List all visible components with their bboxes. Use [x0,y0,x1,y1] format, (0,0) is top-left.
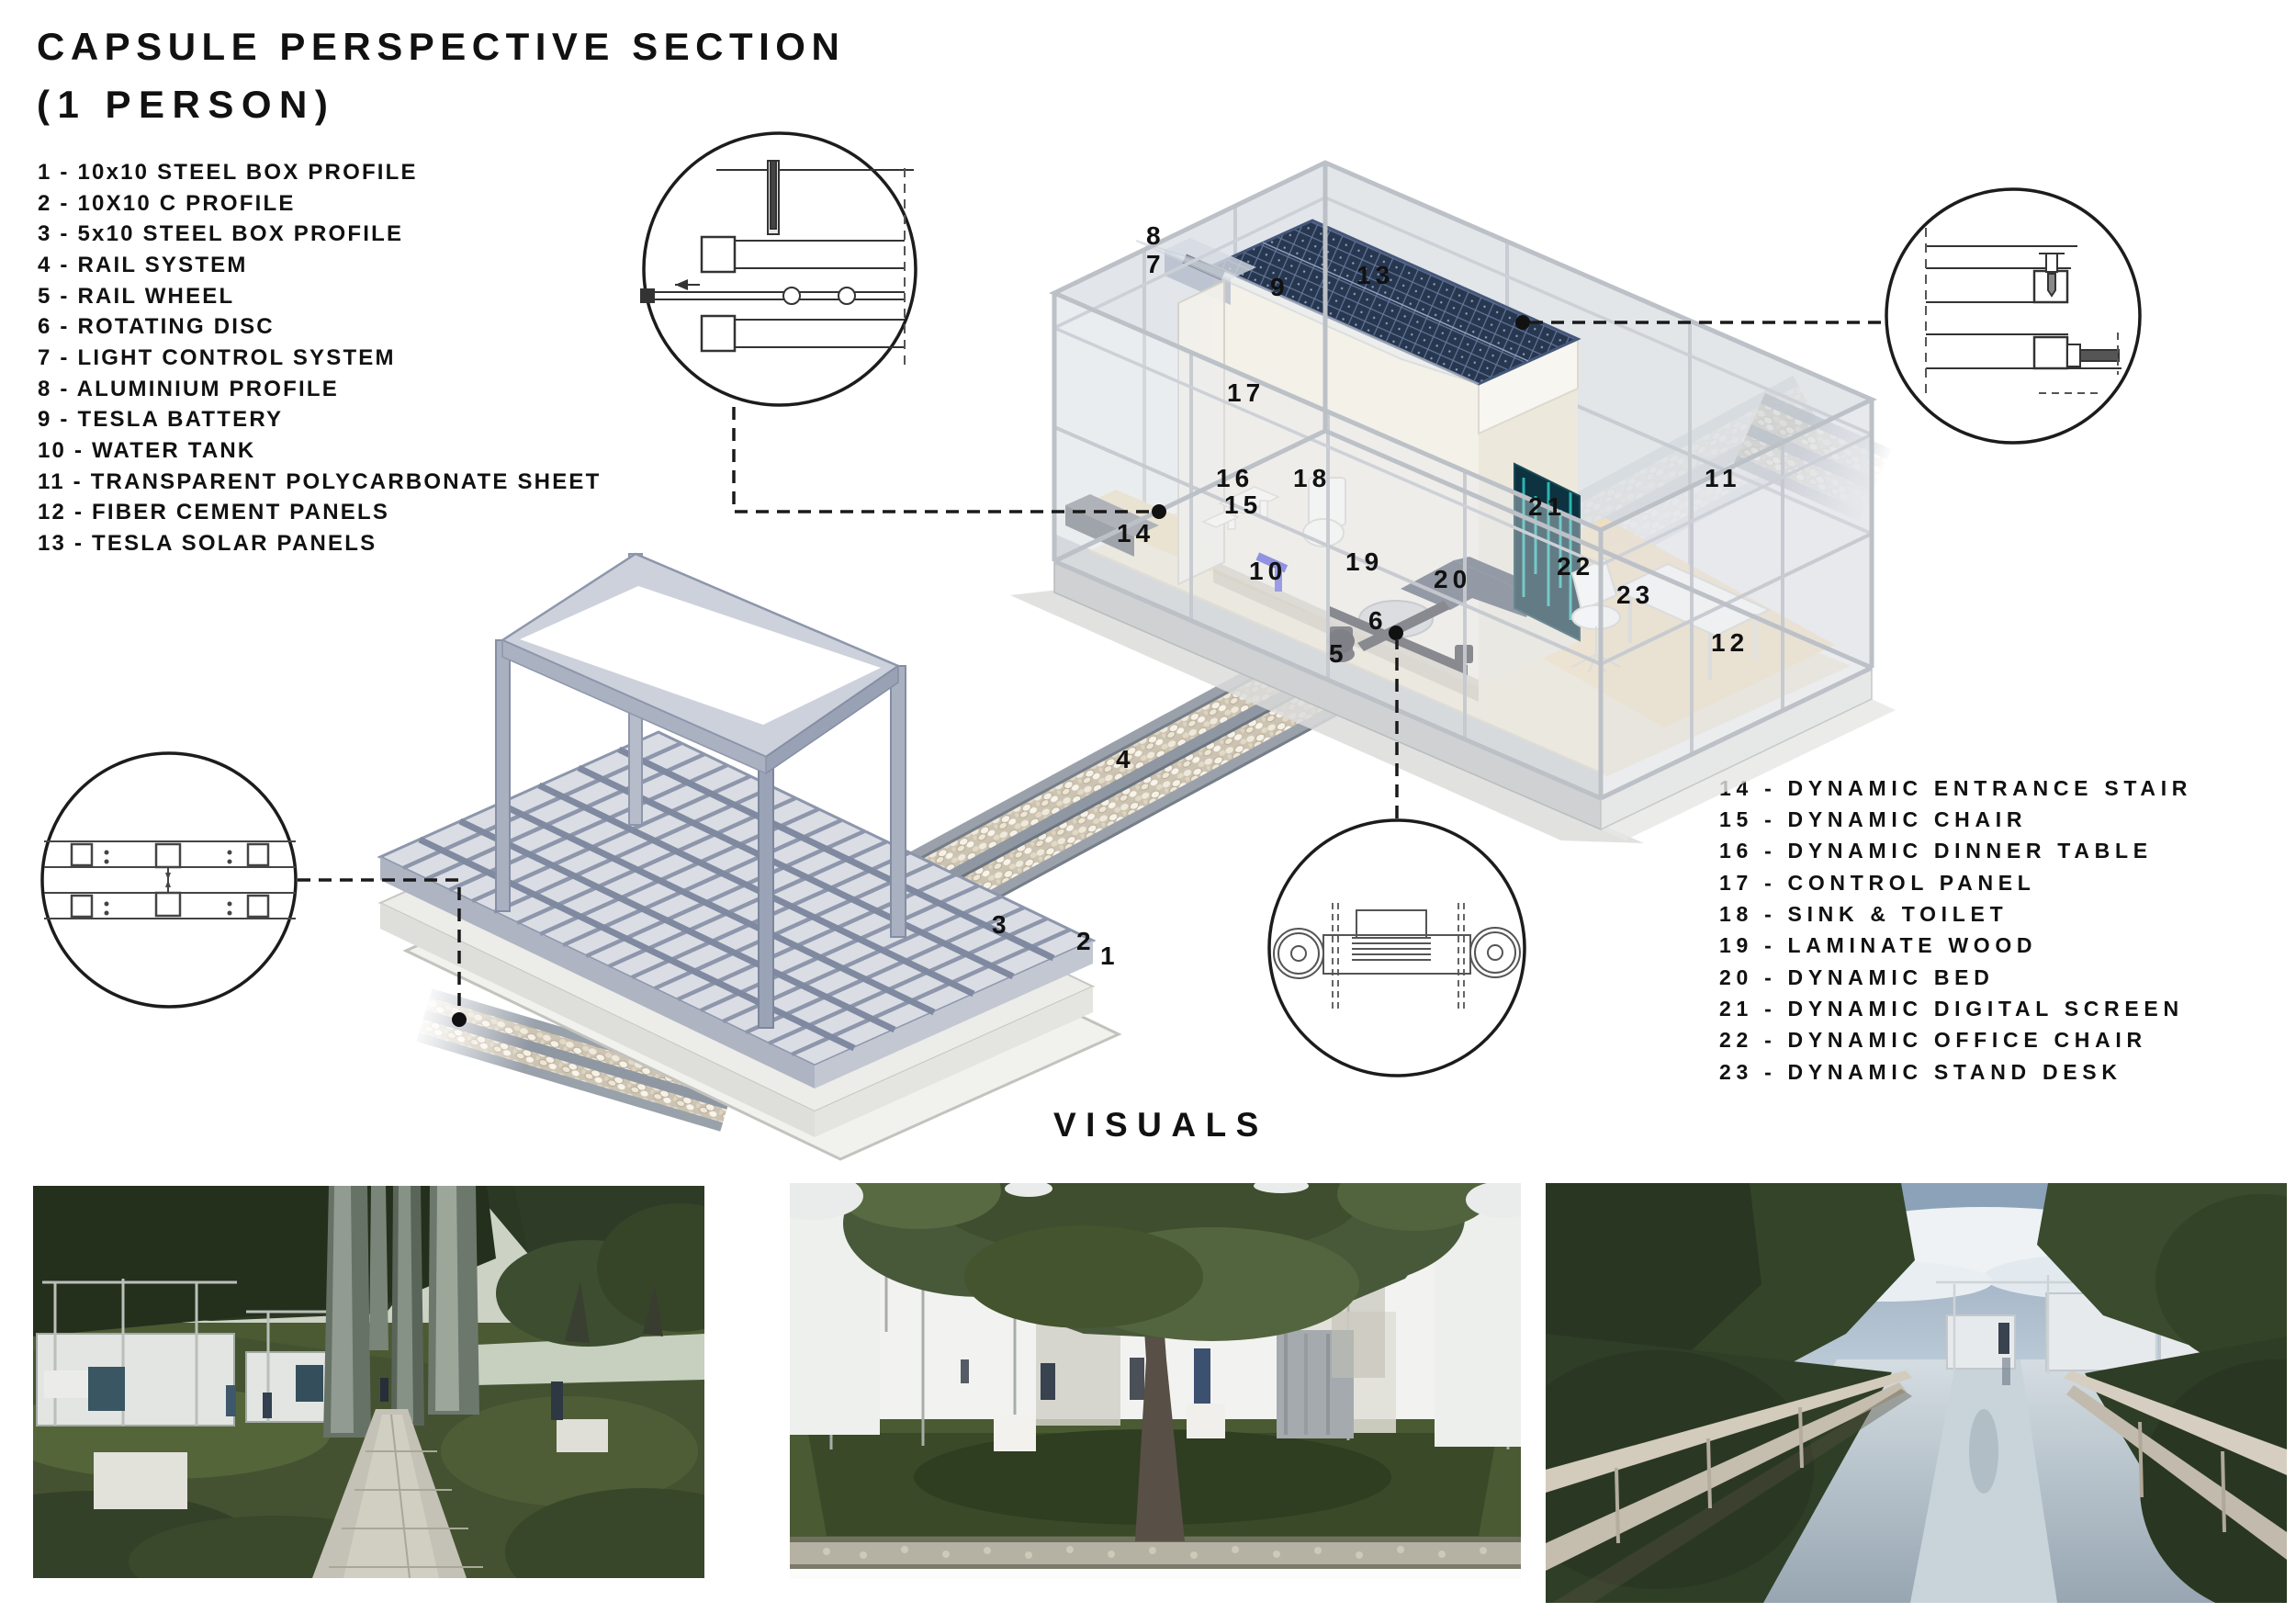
svg-text:16 - DYNAMIC DINNER TABLE: 16 - DYNAMIC DINNER TABLE [1719,839,2153,863]
svg-text:10: 10 [1249,557,1287,585]
svg-text:18 - SINK & TOILET: 18 - SINK & TOILET [1719,902,2008,926]
svg-text:2 - 10X10 C PROFILE: 2 - 10X10 C PROFILE [38,191,296,216]
svg-text:9: 9 [1270,273,1289,301]
svg-text:16: 16 [1216,464,1254,492]
svg-text:3 - 5x10 STEEL BOX PROFILE: 3 - 5x10 STEEL BOX PROFILE [38,221,403,246]
svg-text:19 - LAMINATE WOOD: 19 - LAMINATE WOOD [1719,933,2037,957]
svg-text:2: 2 [1076,927,1096,955]
svg-text:11: 11 [1705,464,1741,492]
svg-text:6: 6 [1368,606,1388,635]
svg-text:10 - WATER TANK: 10 - WATER TANK [38,438,255,463]
svg-text:15: 15 [1224,491,1262,519]
svg-text:19: 19 [1345,547,1383,576]
svg-text:18: 18 [1293,464,1331,492]
svg-text:23: 23 [1616,581,1654,609]
svg-text:21: 21 [1528,492,1566,521]
svg-text:15 - DYNAMIC CHAIR: 15 - DYNAMIC CHAIR [1719,807,2027,831]
svg-text:20 - DYNAMIC BED: 20 - DYNAMIC BED [1719,965,1995,989]
svg-text:4: 4 [1116,745,1135,773]
svg-text:17: 17 [1227,378,1265,407]
svg-text:23 - DYNAMIC STAND DESK: 23 - DYNAMIC STAND DESK [1719,1060,2122,1084]
svg-text:21 - DYNAMIC DIGITAL SCREEN: 21 - DYNAMIC DIGITAL SCREEN [1719,997,2184,1021]
svg-text:VISUALS: VISUALS [1053,1106,1268,1144]
svg-text:14 - DYNAMIC ENTRANCE STAIR: 14 - DYNAMIC ENTRANCE STAIR [1719,776,2192,800]
svg-text:22 - DYNAMIC OFFICE CHAIR: 22 - DYNAMIC OFFICE CHAIR [1719,1028,2147,1052]
svg-text:5 - RAIL WHEEL: 5 - RAIL WHEEL [38,284,234,309]
svg-text:8: 8 [1146,221,1165,250]
svg-text:(1 PERSON): (1 PERSON) [37,83,335,126]
svg-text:8 - ALUMINIUM PROFILE: 8 - ALUMINIUM PROFILE [38,377,339,401]
svg-text:12: 12 [1711,628,1749,657]
svg-text:7: 7 [1146,250,1165,278]
svg-text:22: 22 [1557,552,1594,581]
svg-text:17 - CONTROL PANEL: 17 - CONTROL PANEL [1719,871,2036,895]
svg-text:5: 5 [1329,639,1348,668]
svg-text:7 - LIGHT CONTROL SYSTEM: 7 - LIGHT CONTROL SYSTEM [38,345,396,370]
svg-text:6 - ROTATING DISC: 6 - ROTATING DISC [38,314,275,339]
svg-text:20: 20 [1434,565,1471,593]
svg-text:13: 13 [1356,261,1394,289]
svg-text:13 - TESLA SOLAR PANELS: 13 - TESLA SOLAR PANELS [38,531,377,556]
svg-text:4 - RAIL SYSTEM: 4 - RAIL SYSTEM [38,253,248,277]
svg-text:1 - 10x10 STEEL BOX PROFILE: 1 - 10x10 STEEL BOX PROFILE [38,160,418,185]
svg-text:14: 14 [1117,519,1154,547]
svg-text:CAPSULE PERSPECTIVE SECTION: CAPSULE PERSPECTIVE SECTION [37,25,845,68]
svg-text:9 - TESLA BATTERY: 9 - TESLA BATTERY [38,407,283,432]
svg-text:12 - FIBER CEMENT PANELS: 12 - FIBER CEMENT PANELS [38,500,389,524]
svg-text:11 - TRANSPARENT POLYCARBONATE: 11 - TRANSPARENT POLYCARBONATE SHEET [38,469,602,494]
svg-text:3: 3 [992,910,1011,939]
svg-text:1: 1 [1100,942,1120,970]
